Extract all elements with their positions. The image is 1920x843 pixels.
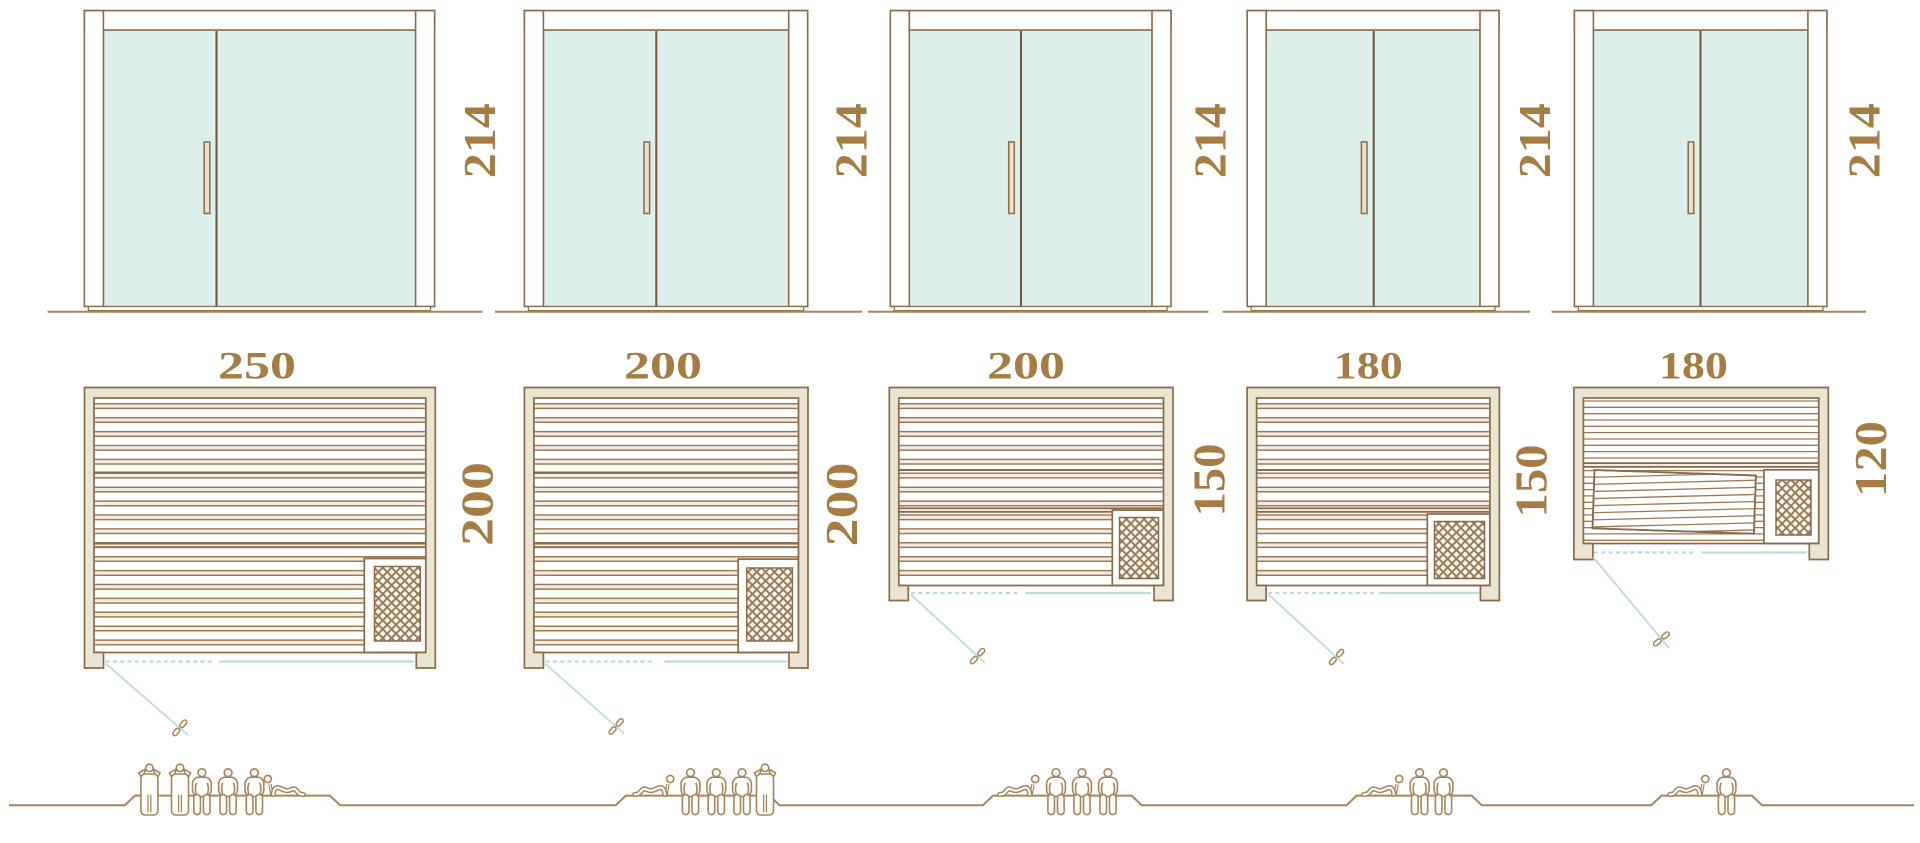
svg-text:214: 214 (1838, 103, 1889, 178)
svg-text:214: 214 (1184, 103, 1235, 178)
svg-text:120: 120 (1846, 421, 1896, 497)
svg-text:200: 200 (817, 463, 867, 547)
svg-text:180: 180 (1334, 345, 1403, 388)
svg-text:214: 214 (454, 103, 505, 178)
svg-text:150: 150 (1185, 444, 1235, 517)
svg-text:214: 214 (1509, 103, 1560, 178)
svg-text:250: 250 (218, 345, 296, 388)
svg-text:214: 214 (825, 103, 876, 178)
svg-text:200: 200 (624, 345, 702, 388)
svg-text:200: 200 (987, 345, 1065, 388)
svg-text:180: 180 (1659, 345, 1728, 388)
svg-text:200: 200 (452, 462, 502, 546)
svg-text:150: 150 (1507, 445, 1557, 518)
